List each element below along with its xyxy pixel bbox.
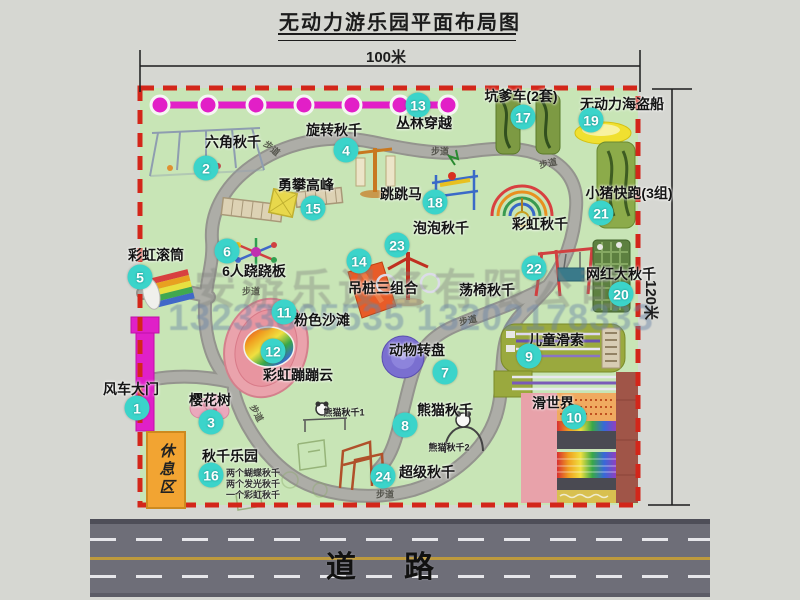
attraction-label-17: 坑爹车(2套) xyxy=(484,86,557,106)
attraction-label-22: 荡椅秋千 xyxy=(459,280,515,300)
rest-area-label: 休息区 xyxy=(156,443,177,497)
attraction-label-14: 吊桩三组合 xyxy=(348,278,418,298)
marker-badge-15: 15 xyxy=(301,196,326,221)
marker-badge-9: 9 xyxy=(517,344,542,369)
marker-badge-10: 10 xyxy=(562,405,587,430)
attraction-label-15: 勇攀高峰 xyxy=(278,175,334,195)
marker-badge-13: 13 xyxy=(406,93,431,118)
marker-badge-7: 7 xyxy=(433,360,458,385)
swing-park-note-3: 一个彩虹秋千 xyxy=(226,488,280,501)
panda-swing-2-label: 熊猫秋千2 xyxy=(428,441,469,454)
attraction-label-12: 彩虹蹦蹦云 xyxy=(263,365,333,385)
attraction-label-2: 六角秋千 xyxy=(205,132,261,152)
road-label: 道路 xyxy=(90,542,670,586)
footpath-label: 步道 xyxy=(376,488,394,501)
attraction-label-18: 跳跳马 xyxy=(380,184,422,204)
road: 道路 xyxy=(90,519,710,597)
height-dimension-label: 120米 xyxy=(641,280,662,320)
marker-badge-22: 22 xyxy=(522,256,547,281)
marker-badge-4: 4 xyxy=(334,138,359,163)
marker-badge-19: 19 xyxy=(579,108,604,133)
attraction-label-5: 彩虹滚筒 xyxy=(128,245,184,265)
attraction-label-3: 樱花树 xyxy=(189,390,231,410)
width-dimension-label: 100米 xyxy=(366,46,406,67)
attraction-label-23: 泡泡秋千 xyxy=(413,218,469,238)
attraction-label-11: 粉色沙滩 xyxy=(294,310,350,330)
marker-badge-23: 23 xyxy=(385,233,410,258)
attraction-label-24: 超级秋千 xyxy=(399,462,455,482)
marker-badge-1: 1 xyxy=(125,396,150,421)
footpath-label: 步道 xyxy=(431,145,449,158)
marker-badge-2: 2 xyxy=(194,156,219,181)
rainbow-swing-label: 彩虹秋千 xyxy=(512,214,568,234)
marker-badge-21: 21 xyxy=(589,201,614,226)
page-title: 无动力游乐园平面布局图 xyxy=(0,6,800,35)
marker-badge-3: 3 xyxy=(199,410,224,435)
attraction-label-6: 6人跷跷板 xyxy=(222,261,286,281)
marker-badge-6: 6 xyxy=(215,239,240,264)
attraction-label-13: 丛林穿越 xyxy=(396,113,452,133)
attraction-label-8: 熊猫秋千 xyxy=(417,400,473,420)
title-underline xyxy=(278,33,516,41)
marker-badge-12: 12 xyxy=(261,339,286,364)
rest-area-box: 休息区 xyxy=(146,431,186,509)
footpath-label: 步道 xyxy=(242,285,260,298)
marker-badge-17: 17 xyxy=(511,105,536,130)
park-layout-map: 安游乐设备有限公司 13233805535 13202178333 无动力游乐园… xyxy=(0,0,800,600)
marker-badge-24: 24 xyxy=(371,464,396,489)
panda-swing-1-label: 熊猫秋千1 xyxy=(323,406,364,419)
marker-badge-18: 18 xyxy=(423,190,448,215)
road-lane-line xyxy=(90,538,710,541)
marker-badge-8: 8 xyxy=(393,413,418,438)
attraction-label-4: 旋转秋千 xyxy=(306,120,362,140)
marker-badge-20: 20 xyxy=(609,282,634,307)
marker-badge-16: 16 xyxy=(199,463,224,488)
marker-badge-14: 14 xyxy=(347,249,372,274)
attraction-label-7: 动物转盘 xyxy=(389,340,445,360)
marker-badge-11: 11 xyxy=(272,300,297,325)
marker-badge-5: 5 xyxy=(128,265,153,290)
